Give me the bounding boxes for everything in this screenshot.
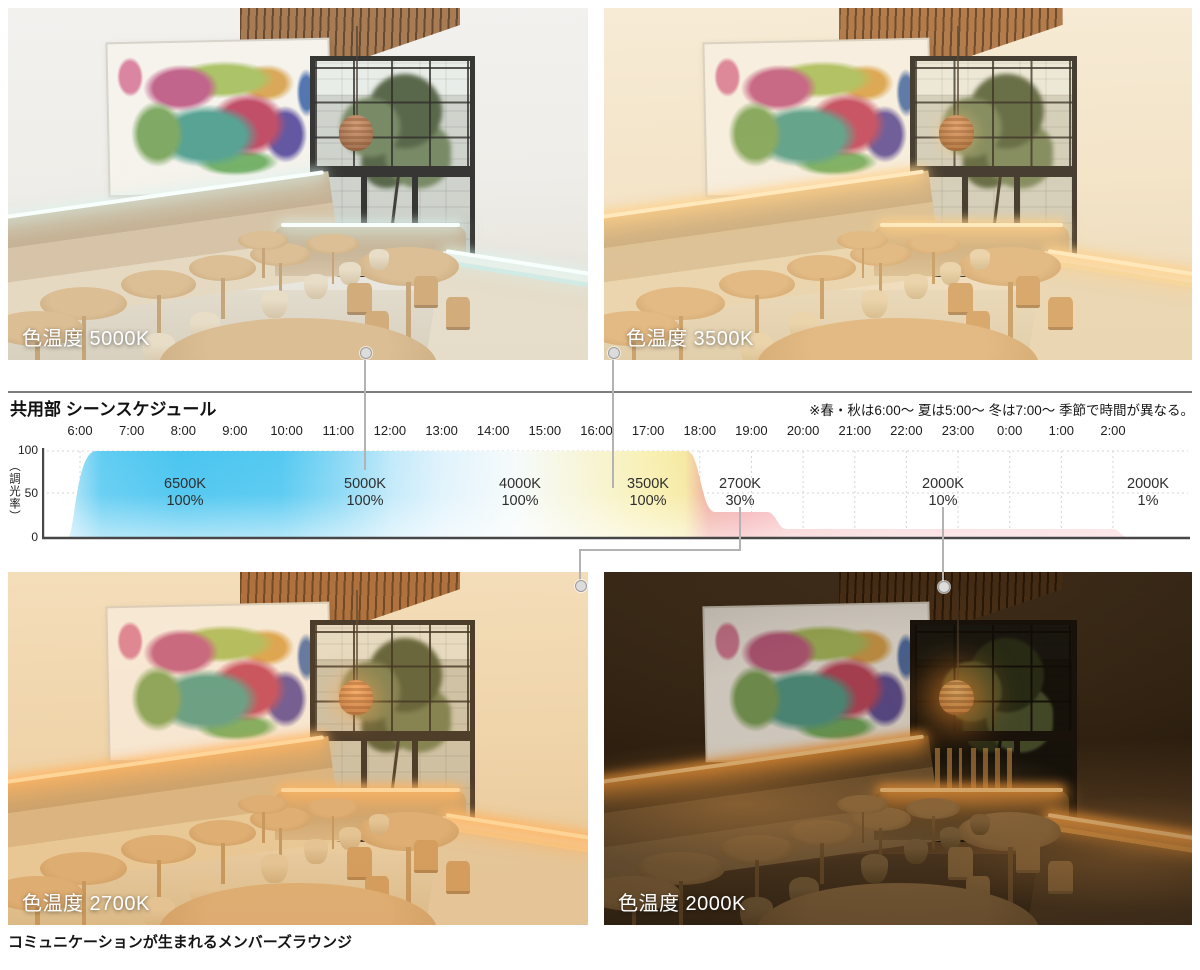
segment-dim-level: 100% bbox=[310, 493, 420, 510]
pendant-cord bbox=[957, 26, 959, 119]
connector-dot bbox=[575, 580, 587, 592]
x-axis-tick: 23:00 bbox=[934, 423, 982, 438]
round-table bbox=[189, 820, 256, 846]
connector-dot bbox=[360, 347, 372, 359]
y-axis-tick: 0 bbox=[0, 530, 38, 544]
connector-dot bbox=[608, 347, 620, 359]
chart-segment-label: 6500K100% bbox=[130, 476, 240, 509]
pendant-lamp bbox=[339, 115, 374, 150]
segment-dim-level: 100% bbox=[130, 493, 240, 510]
photo-label: 色温度 2000K bbox=[618, 887, 746, 916]
x-axis-tick: 0:00 bbox=[986, 423, 1034, 438]
pendant-lamp bbox=[339, 680, 374, 715]
connector-line bbox=[364, 352, 366, 470]
x-axis-tick: 12:00 bbox=[366, 423, 414, 438]
segment-kelvin: 2000K bbox=[1093, 476, 1200, 493]
window-grid bbox=[915, 61, 1073, 173]
connector-line bbox=[942, 507, 944, 585]
chart-title: 共用部 シーンスケジュール bbox=[10, 395, 216, 420]
chart-segment-label: 2000K10% bbox=[888, 476, 998, 509]
window-grid bbox=[315, 625, 470, 738]
lounge-photo-3500k: 色温度 3500K bbox=[604, 8, 1192, 360]
connector-line bbox=[612, 352, 614, 488]
window-grid bbox=[315, 61, 470, 173]
stool bbox=[261, 290, 288, 318]
lounge-photo-6500k: 色温度 5000K bbox=[8, 8, 588, 360]
round-table bbox=[837, 231, 888, 250]
stool bbox=[304, 839, 328, 864]
round-table bbox=[719, 270, 795, 299]
wood-chair bbox=[1016, 276, 1041, 309]
x-axis-tick: 1:00 bbox=[1037, 423, 1085, 438]
x-axis-tick: 6:00 bbox=[56, 423, 104, 438]
chart-segment-label: 5000K100% bbox=[310, 476, 420, 509]
chart-segment-label: 4000K100% bbox=[465, 476, 575, 509]
x-axis-tick: 14:00 bbox=[469, 423, 517, 438]
stool bbox=[304, 274, 328, 299]
round-table bbox=[787, 255, 855, 281]
segment-kelvin: 6500K bbox=[130, 476, 240, 493]
chart-segment-label: 2700K30% bbox=[685, 476, 795, 509]
catalog-page: 共用部 シーンスケジュール ※春・秋は6:00～ 夏は5:00～ 冬は7:00～… bbox=[0, 0, 1200, 970]
window-transom bbox=[912, 166, 1076, 177]
round-table bbox=[121, 835, 196, 864]
window-transom bbox=[312, 731, 473, 742]
y-axis-tick: 100 bbox=[0, 443, 38, 457]
round-table bbox=[306, 234, 359, 254]
segment-dim-level: 100% bbox=[465, 493, 575, 510]
lounge-scene: 色温度 3500K bbox=[604, 8, 1192, 360]
lounge-photo-2000k: 色温度 2000K bbox=[604, 572, 1192, 925]
wood-chair bbox=[414, 276, 438, 309]
segment-kelvin: 2000K bbox=[888, 476, 998, 493]
x-axis-tick: 13:00 bbox=[418, 423, 466, 438]
photo-label: 色温度 2700K bbox=[22, 887, 150, 916]
pendant-cord bbox=[356, 590, 358, 684]
pendant-cord bbox=[356, 26, 358, 119]
wall-glow bbox=[604, 572, 1192, 925]
photo-label: 色温度 5000K bbox=[22, 322, 150, 351]
cove-light-back bbox=[281, 788, 461, 792]
stool bbox=[904, 274, 928, 299]
pendant-lamp bbox=[939, 115, 974, 150]
x-axis-tick: 19:00 bbox=[727, 423, 775, 438]
connector-dot bbox=[938, 581, 950, 593]
connector-line bbox=[579, 549, 741, 551]
stool bbox=[339, 262, 360, 285]
chart-segment-label: 2000K1% bbox=[1093, 476, 1200, 509]
lounge-scene: 色温度 2000K bbox=[604, 572, 1192, 925]
wood-chair bbox=[414, 840, 438, 873]
page-caption: コミュニケーションが生まれるメンバーズラウンジ bbox=[8, 931, 352, 952]
y-axis-tick: 50 bbox=[0, 486, 38, 500]
x-axis-tick: 10:00 bbox=[263, 423, 311, 438]
segment-kelvin: 5000K bbox=[310, 476, 420, 493]
lounge-photo-2700k: 色温度 2700K bbox=[8, 572, 588, 925]
window-transom bbox=[312, 166, 473, 177]
connector-line bbox=[739, 507, 741, 551]
round-table bbox=[906, 234, 960, 254]
lounge-scene: 色温度 5000K bbox=[8, 8, 588, 360]
stool bbox=[369, 814, 389, 835]
wood-chair bbox=[446, 861, 470, 894]
x-axis-tick: 9:00 bbox=[211, 423, 259, 438]
stool bbox=[369, 249, 389, 270]
photo-label: 色温度 3500K bbox=[626, 322, 754, 351]
x-axis-tick: 17:00 bbox=[624, 423, 672, 438]
round-table bbox=[306, 798, 359, 818]
round-table bbox=[121, 270, 196, 299]
x-axis-tick: 7:00 bbox=[108, 423, 156, 438]
chart-season-note: ※春・秋は6:00～ 夏は5:00～ 冬は7:00～ 季節で時間が異なる。 bbox=[809, 399, 1194, 419]
cove-light-back bbox=[880, 223, 1062, 227]
cove-light-back bbox=[281, 223, 461, 227]
wood-chair bbox=[1048, 297, 1073, 330]
x-axis-tick: 15:00 bbox=[521, 423, 569, 438]
x-axis-tick: 18:00 bbox=[676, 423, 724, 438]
wood-chair bbox=[446, 297, 470, 330]
segment-kelvin: 4000K bbox=[465, 476, 575, 493]
x-axis-tick: 11:00 bbox=[314, 423, 362, 438]
segment-dim-level: 1% bbox=[1093, 493, 1200, 510]
section-divider bbox=[8, 391, 1192, 393]
round-table bbox=[238, 231, 288, 250]
stool bbox=[861, 290, 888, 318]
x-axis-tick: 20:00 bbox=[779, 423, 827, 438]
stool bbox=[261, 854, 288, 882]
x-axis-tick: 22:00 bbox=[882, 423, 930, 438]
x-axis-tick: 21:00 bbox=[831, 423, 879, 438]
x-axis-tick: 2:00 bbox=[1089, 423, 1137, 438]
lounge-scene: 色温度 2700K bbox=[8, 572, 588, 925]
x-axis-tick: 8:00 bbox=[159, 423, 207, 438]
segment-kelvin: 2700K bbox=[685, 476, 795, 493]
